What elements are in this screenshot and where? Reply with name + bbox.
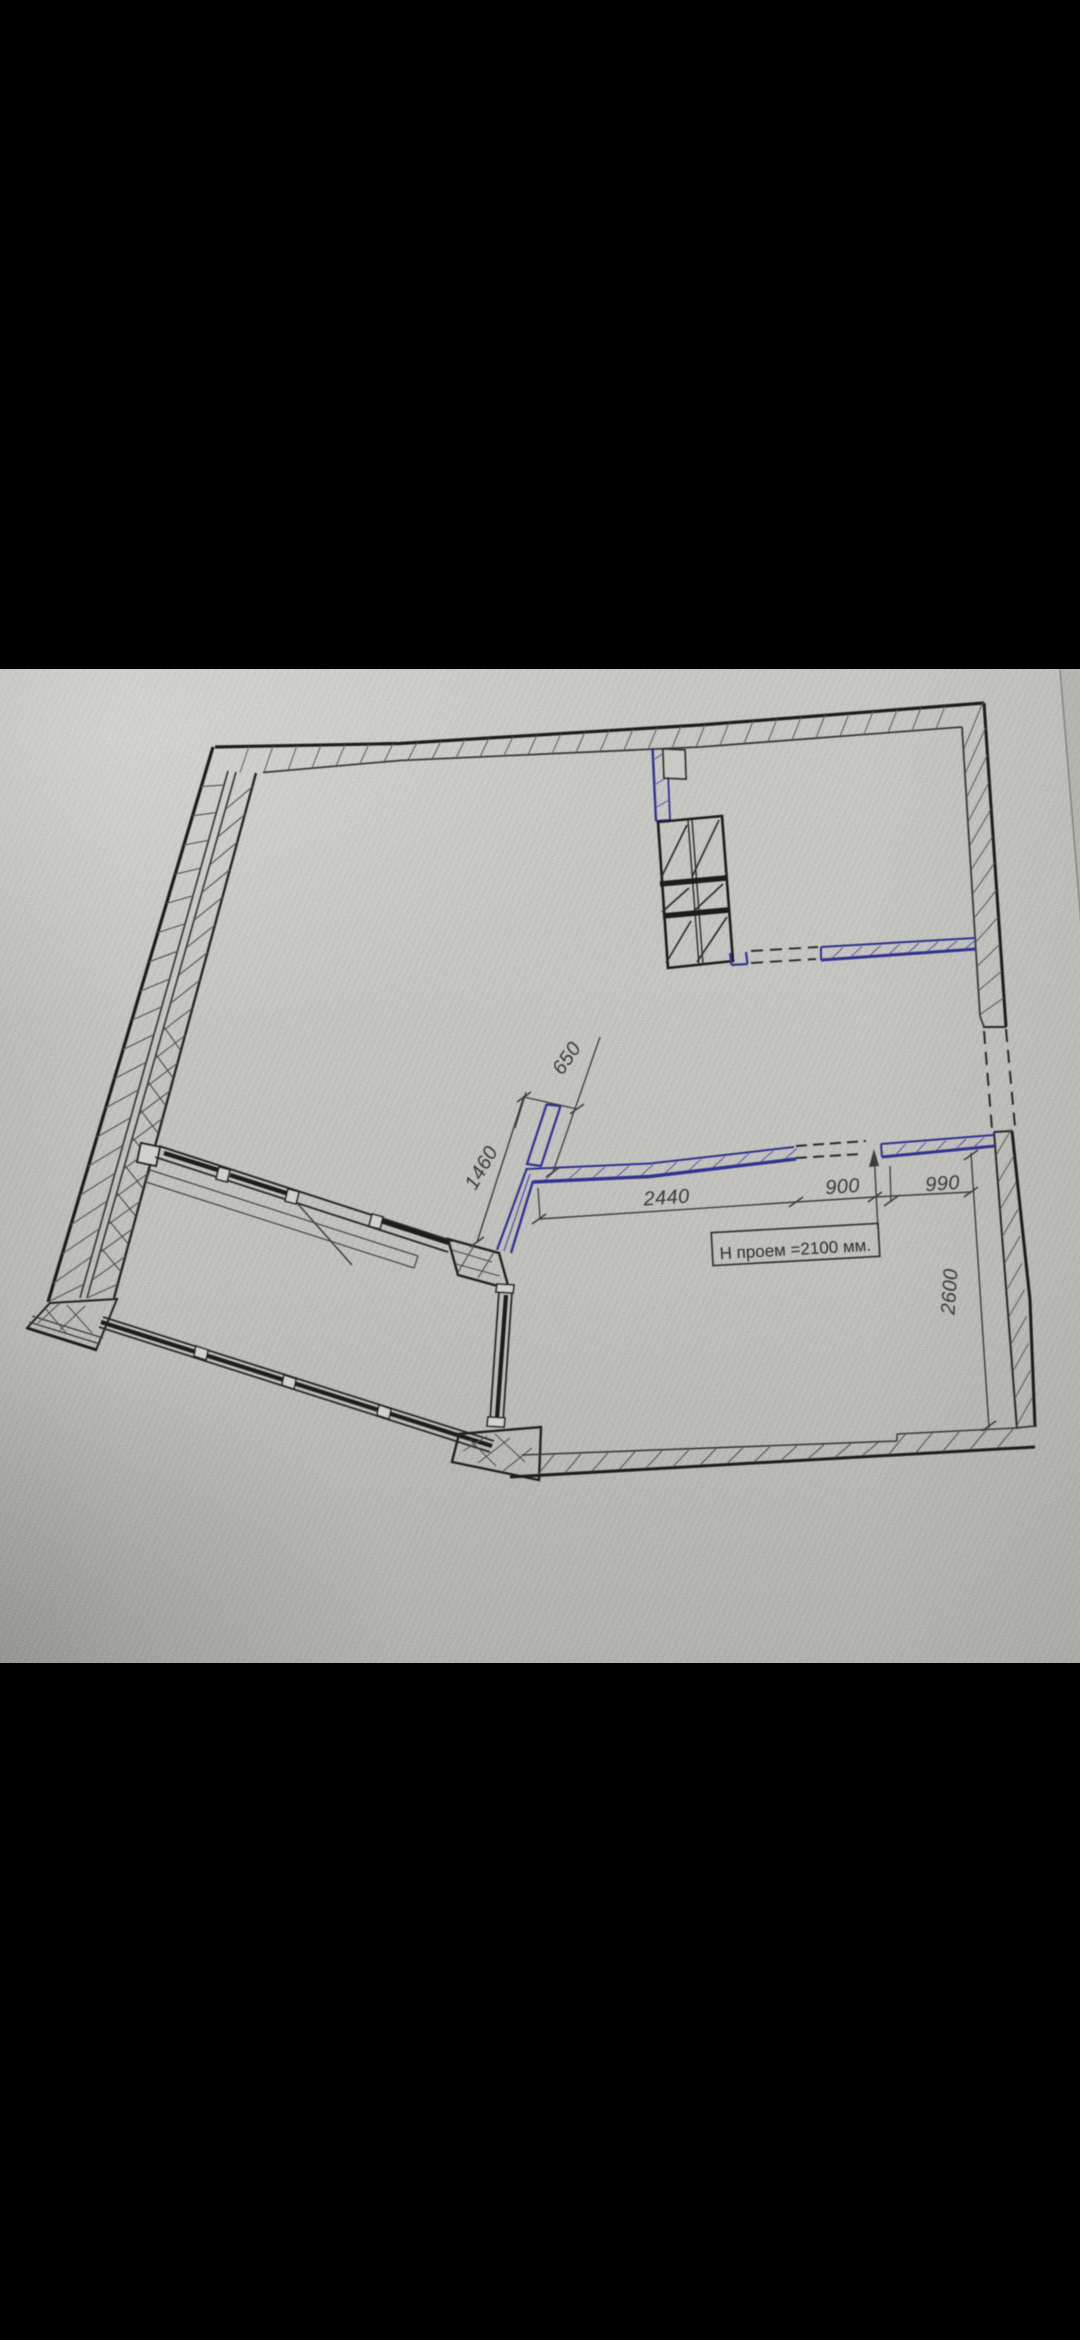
svg-text:Н проем =2100 мм.: Н проем =2100 мм. [719, 1236, 871, 1263]
svg-text:990: 990 [925, 1172, 961, 1196]
svg-text:2600: 2600 [937, 1268, 962, 1317]
svg-text:1460: 1460 [461, 1143, 503, 1194]
svg-text:2440: 2440 [642, 1185, 691, 1210]
svg-text:650: 650 [548, 1038, 586, 1079]
svg-text:900: 900 [825, 1175, 861, 1199]
